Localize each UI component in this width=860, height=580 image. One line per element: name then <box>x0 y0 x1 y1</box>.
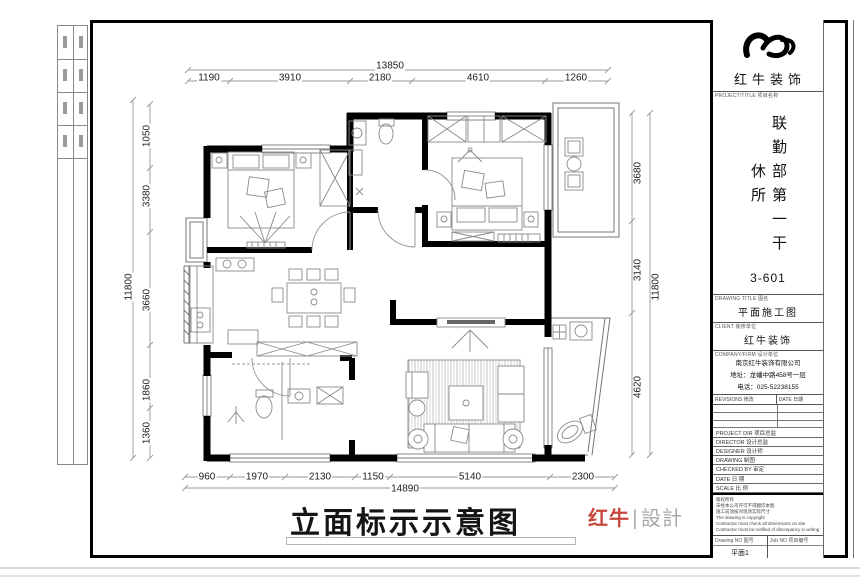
staff-row-label: DESIGNER 设计师 <box>716 447 763 455</box>
staff-row-label: PROJECT DIR 项目总监 <box>716 429 776 437</box>
brand-name: 红牛装饰 <box>713 67 823 91</box>
staff-row: SCALE 比 例 <box>713 484 823 493</box>
staff-row: DESIGNER 设计师 <box>713 447 823 456</box>
dim-right-seg: 4620 <box>633 375 644 399</box>
date-col-label: DATE 日期 <box>777 395 805 404</box>
dim-top-total: 13850 <box>375 61 405 72</box>
staff-row-label: DRAWING 制图 <box>716 456 755 464</box>
balcony-outlines <box>184 103 619 455</box>
dim-bottom-seg: 2300 <box>571 472 595 483</box>
brand-watermark-red: 红牛 <box>588 508 630 530</box>
brand-name-section: 红牛装饰 <box>713 67 823 92</box>
project-number: 3-601 <box>713 271 823 285</box>
job-no-value <box>768 546 823 548</box>
dim-top-seg: 1190 <box>197 73 221 84</box>
staff-row: DRAWING 制图 <box>713 456 823 465</box>
company-phone: 电话：025-52238155 <box>713 382 823 394</box>
sheet-number-section: Drawing NO 图号 平面1 Job NO 项目编号 <box>713 535 823 558</box>
project-section: PROJECT/TITLE 项目名称 联勤部第一干休所 3-601 <box>713 92 823 295</box>
drawing-no-value: 平面1 <box>713 546 767 558</box>
note-line: Contractor must be notified of discrepan… <box>716 527 820 533</box>
brand-watermark: 红牛∣設計 <box>588 502 683 531</box>
dim-bottom-total: 14890 <box>390 484 420 495</box>
drawing-no-cell: Drawing NO 图号 平面1 <box>713 536 768 558</box>
revisions-header: REVISIONS 修改 DATE 日期 <box>713 395 823 405</box>
exterior-walls <box>207 113 585 461</box>
dim-top-seg: 4610 <box>466 73 490 84</box>
dim-bottom-seg: 1970 <box>245 472 269 483</box>
dim-left-seg: 1360 <box>142 421 153 445</box>
dim-left-seg: 3380 <box>142 184 153 208</box>
dim-right-seg: 3140 <box>633 258 644 282</box>
sheet-title-underline <box>286 537 576 545</box>
furniture <box>190 116 596 452</box>
dim-bottom-seg: 1150 <box>361 472 385 483</box>
staff-row-label: SCALE 比 例 <box>716 484 748 492</box>
drawing-title-section: DRAWING TITLE 图名 平面施工图 <box>713 295 823 323</box>
client-label: CLIENT 装修单位 <box>713 323 823 330</box>
client-section: CLIENT 装修单位 红牛装饰 <box>713 323 823 351</box>
project-name: 联勤部第一干休所 <box>747 107 789 267</box>
dim-top-seg: 1260 <box>564 73 588 84</box>
company-section: COMPANY/FIRM 设计单位 南京红牛装饰有限公司 地址：龙蟠中路458号… <box>713 351 823 395</box>
company-name: 南京红牛装饰有限公司 <box>713 358 823 370</box>
revision-row <box>713 405 823 413</box>
company-label: COMPANY/FIRM 设计单位 <box>713 351 823 358</box>
revisions-label: REVISIONS 修改 <box>713 395 777 404</box>
dim-left-seg: 3660 <box>142 288 153 312</box>
dim-top-seg: 3910 <box>278 73 302 84</box>
brand-watermark-gray: ∣設計 <box>630 508 683 530</box>
client-name: 红牛装饰 <box>713 330 823 350</box>
drawing-title-label: DRAWING TITLE 图名 <box>713 295 823 302</box>
company-address: 地址：龙蟠中路458号一层 <box>713 370 823 382</box>
staff-row: CHECKED BY 审定 <box>713 465 823 474</box>
notes-block: 版权所有 未经本公司许可不得翻印本图 施工前须核对现场实际尺寸 The draw… <box>713 493 823 535</box>
dim-left-seg: 1050 <box>142 124 153 148</box>
dim-left-total: 11800 <box>124 272 135 301</box>
dim-right-total: 11800 <box>651 272 662 301</box>
title-block: 红牛装饰 PROJECT/TITLE 项目名称 联勤部第一干休所 3-601 D… <box>710 20 824 558</box>
job-no-label: Job NO 项目编号 <box>768 536 823 546</box>
staff-row-label: CHECKED BY 审定 <box>716 465 764 473</box>
staff-row-label: DIRECTOR 设计总监 <box>716 438 768 446</box>
dim-bottom-seg: 960 <box>198 472 217 483</box>
job-no-cell: Job NO 项目编号 <box>768 536 823 558</box>
staff-row-label: DATE 日 期 <box>716 475 744 483</box>
project-label: PROJECT/TITLE 项目名称 <box>713 92 823 99</box>
dim-bottom-seg: 2130 <box>308 472 332 483</box>
drawing-no-label: Drawing NO 图号 <box>713 536 767 546</box>
sheet-title: 立面标示示意图 <box>290 498 521 542</box>
dim-left-seg: 1860 <box>142 378 153 402</box>
drawing-title: 平面施工图 <box>713 302 823 322</box>
bull-logo-icon <box>737 25 799 67</box>
dim-bottom-seg: 5140 <box>458 472 482 483</box>
title-block-logo-section <box>713 20 823 67</box>
staff-row: DIRECTOR 设计总监 <box>713 438 823 447</box>
staff-row: DATE 日 期 <box>713 475 823 484</box>
revision-row <box>713 413 823 421</box>
revision-row <box>713 421 823 429</box>
dim-right-seg: 3680 <box>633 161 644 185</box>
dim-top-seg: 2180 <box>368 73 392 84</box>
staff-row: PROJECT DIR 项目总监 <box>713 428 823 437</box>
